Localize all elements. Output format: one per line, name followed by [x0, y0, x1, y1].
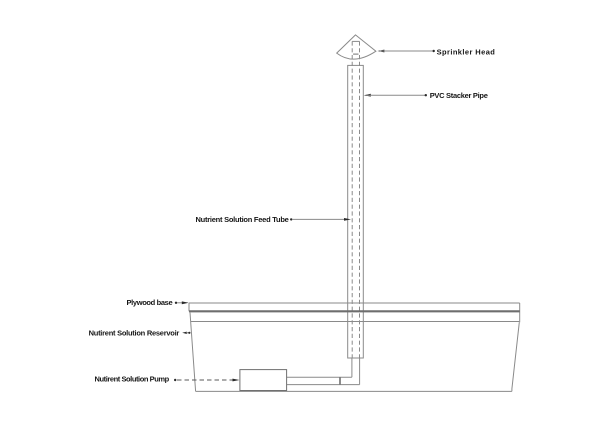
svg-text:PVC Stacker Pipe: PVC Stacker Pipe	[430, 91, 488, 100]
svg-text:Nutrient Solution Feed Tube: Nutrient Solution Feed Tube	[196, 215, 289, 224]
svg-text:Plywood base: Plywood base	[127, 298, 173, 307]
svg-text:Sprinkler Head: Sprinkler Head	[437, 47, 496, 56]
svg-text:Nutirent Solution Reservoir: Nutirent Solution Reservoir	[89, 329, 180, 338]
svg-text:Nutirent Solution Pump: Nutirent Solution Pump	[95, 374, 170, 383]
